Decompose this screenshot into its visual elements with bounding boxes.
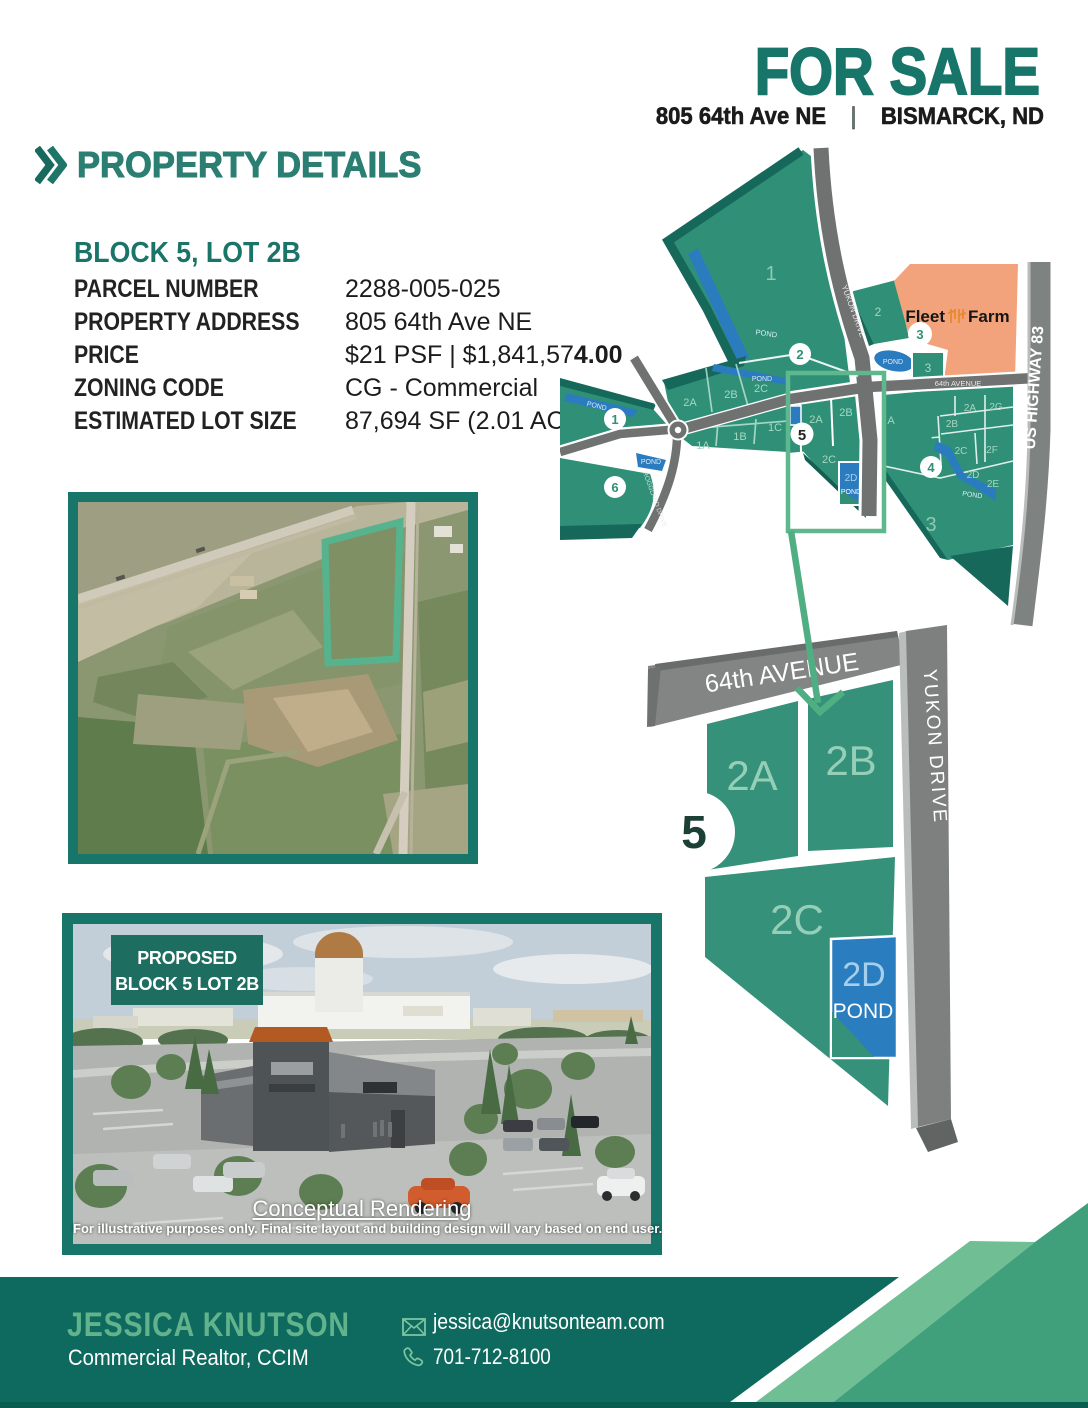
svg-text:2C: 2C xyxy=(822,454,836,466)
svg-text:1B: 1B xyxy=(733,431,746,443)
svg-text:2B: 2B xyxy=(946,419,959,430)
svg-text:POND: POND xyxy=(883,359,903,366)
svg-text:2F: 2F xyxy=(986,445,998,456)
svg-text:1: 1 xyxy=(611,412,618,427)
svg-text:2C: 2C xyxy=(770,896,824,943)
svg-text:POND: POND xyxy=(641,459,661,466)
svg-text:2B: 2B xyxy=(825,737,876,784)
svg-text:2C: 2C xyxy=(955,446,968,457)
svg-text:2B: 2B xyxy=(724,389,737,401)
svg-text:2A: 2A xyxy=(683,397,697,409)
svg-text:POND: POND xyxy=(833,1000,894,1023)
svg-text:4: 4 xyxy=(927,460,935,475)
svg-text:2A: 2A xyxy=(964,403,977,414)
svg-text:3: 3 xyxy=(925,514,936,536)
svg-text:3: 3 xyxy=(916,327,923,342)
svg-text:POND: POND xyxy=(752,376,772,383)
svg-text:2D: 2D xyxy=(842,956,885,994)
svg-text:2: 2 xyxy=(875,305,882,319)
svg-text:1: 1 xyxy=(765,263,776,285)
svg-text:2A: 2A xyxy=(726,752,777,799)
svg-text:64th AVENUE: 64th AVENUE xyxy=(935,379,982,388)
svg-text:2E: 2E xyxy=(987,479,1000,490)
svg-text:A: A xyxy=(887,415,895,427)
svg-text:2C: 2C xyxy=(754,383,768,395)
svg-text:2D: 2D xyxy=(845,473,858,484)
svg-text:1C: 1C xyxy=(768,422,782,434)
svg-text:2A: 2A xyxy=(809,414,823,426)
svg-text:3: 3 xyxy=(925,361,932,375)
svg-text:5: 5 xyxy=(681,806,707,858)
svg-text:POND: POND xyxy=(841,489,861,496)
svg-text:2D: 2D xyxy=(967,470,980,481)
svg-text:6: 6 xyxy=(611,480,618,495)
svg-text:Fleet: Fleet xyxy=(905,307,945,326)
svg-text:2: 2 xyxy=(796,347,803,362)
svg-text:2G: 2G xyxy=(989,402,1003,413)
svg-text:2B: 2B xyxy=(839,407,852,419)
svg-text:1A: 1A xyxy=(696,440,710,452)
svg-text:5: 5 xyxy=(798,427,806,444)
svg-text:Farm: Farm xyxy=(968,307,1010,326)
